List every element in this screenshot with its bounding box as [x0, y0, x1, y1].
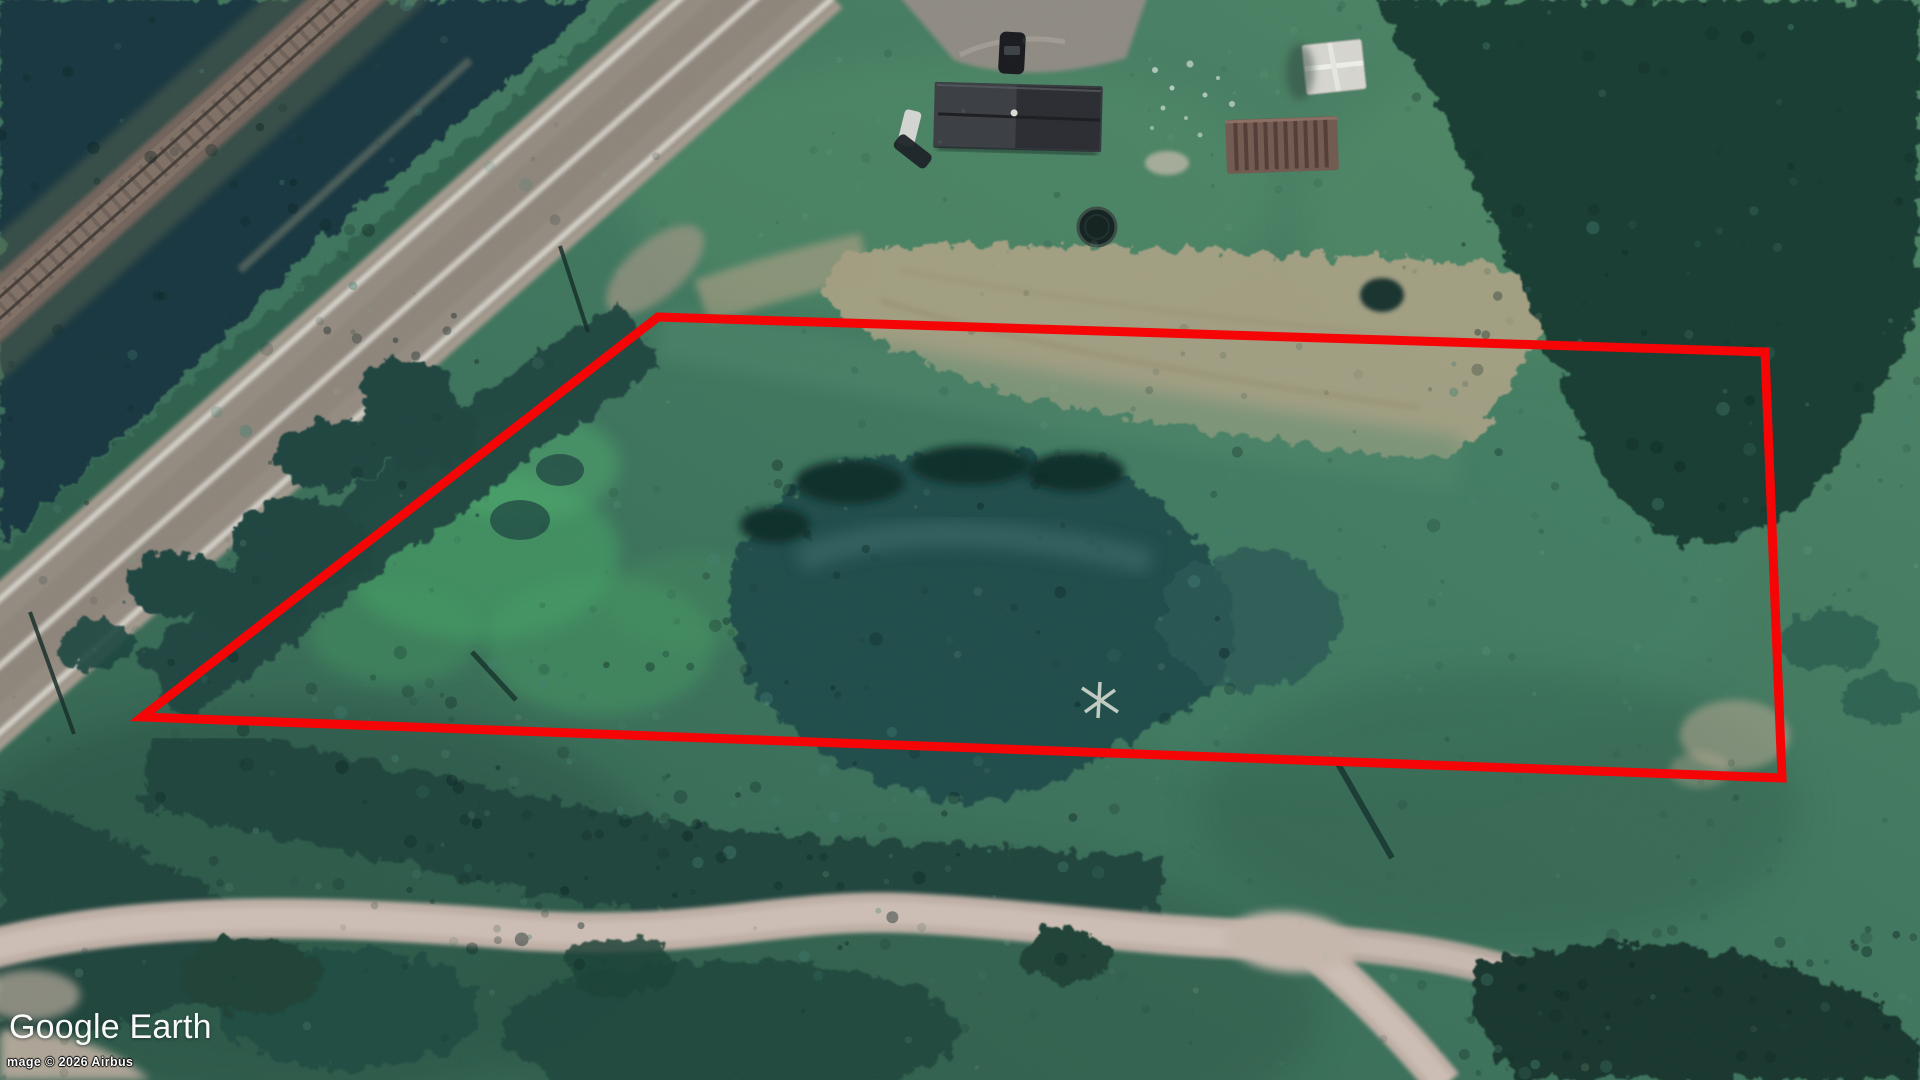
google-earth-logo: Google Earth [9, 1008, 212, 1047]
imagery-attribution: mage © 2026 Airbus [7, 1055, 133, 1069]
photo-grain [0, 0, 1920, 1080]
aerial-imagery[interactable] [0, 0, 1920, 1080]
google-earth-viewport[interactable]: Google Earth mage © 2026 Airbus [0, 0, 1920, 1080]
